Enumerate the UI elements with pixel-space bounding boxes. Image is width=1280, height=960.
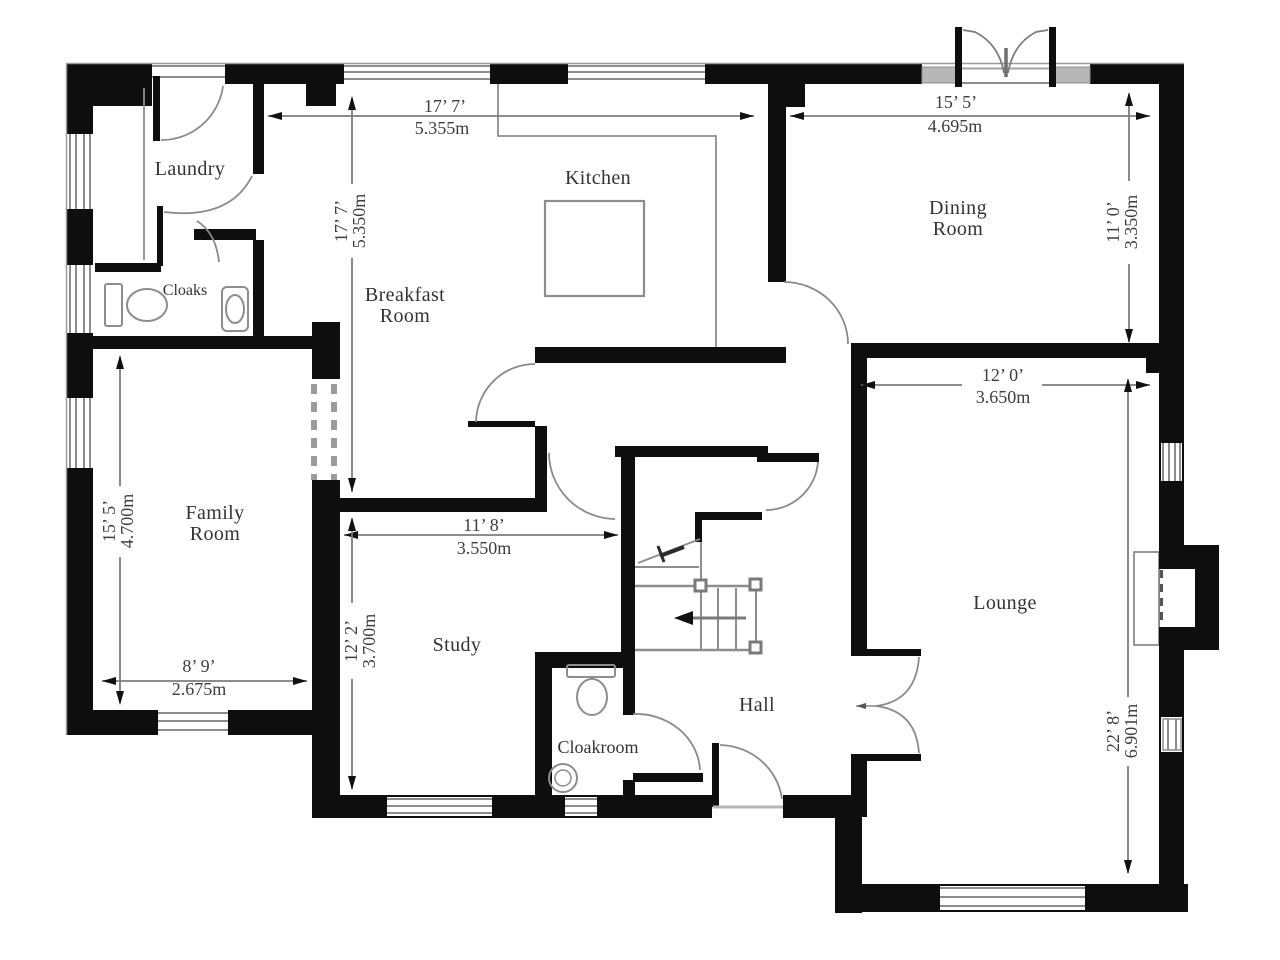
svg-text:Cloaks: Cloaks	[163, 282, 207, 299]
svg-text:Room: Room	[380, 305, 431, 327]
svg-text:Room: Room	[190, 523, 241, 545]
svg-text:Family: Family	[185, 502, 244, 524]
svg-text:2.675m: 2.675m	[172, 679, 227, 699]
svg-text:12’ 0’: 12’ 0’	[982, 365, 1024, 385]
svg-text:Lounge: Lounge	[973, 592, 1037, 614]
svg-text:15’ 5’: 15’ 5’	[935, 92, 977, 112]
svg-text:Room: Room	[933, 218, 984, 240]
svg-text:5.355m: 5.355m	[415, 118, 470, 138]
svg-text:Hall: Hall	[739, 694, 775, 716]
svg-text:11’ 8’: 11’ 8’	[463, 515, 504, 535]
svg-text:Dining: Dining	[929, 197, 987, 219]
svg-text:Kitchen: Kitchen	[565, 167, 631, 189]
svg-text:Breakfast: Breakfast	[365, 284, 445, 306]
svg-text:Cloakroom: Cloakroom	[558, 737, 639, 757]
svg-text:15’ 5’: 15’ 5’	[99, 500, 119, 542]
svg-text:22’ 8’: 22’ 8’	[1103, 710, 1123, 752]
svg-text:3.700m: 3.700m	[359, 614, 379, 669]
svg-text:3.350m: 3.350m	[1121, 195, 1141, 250]
svg-text:4.695m: 4.695m	[928, 116, 983, 136]
svg-text:3.550m: 3.550m	[457, 538, 512, 558]
svg-text:12’ 2’: 12’ 2’	[341, 620, 361, 662]
svg-text:5.350m: 5.350m	[349, 194, 369, 249]
svg-text:6.901m: 6.901m	[1121, 704, 1141, 759]
svg-text:17’ 7’: 17’ 7’	[424, 96, 466, 116]
svg-text:17’ 7’: 17’ 7’	[331, 200, 351, 242]
svg-text:3.650m: 3.650m	[976, 387, 1031, 407]
svg-text:Laundry: Laundry	[155, 158, 226, 180]
svg-text:Study: Study	[433, 634, 482, 656]
svg-text:11’ 0’: 11’ 0’	[1103, 201, 1123, 242]
svg-text:8’ 9’: 8’ 9’	[182, 656, 215, 676]
svg-text:4.700m: 4.700m	[117, 494, 137, 549]
